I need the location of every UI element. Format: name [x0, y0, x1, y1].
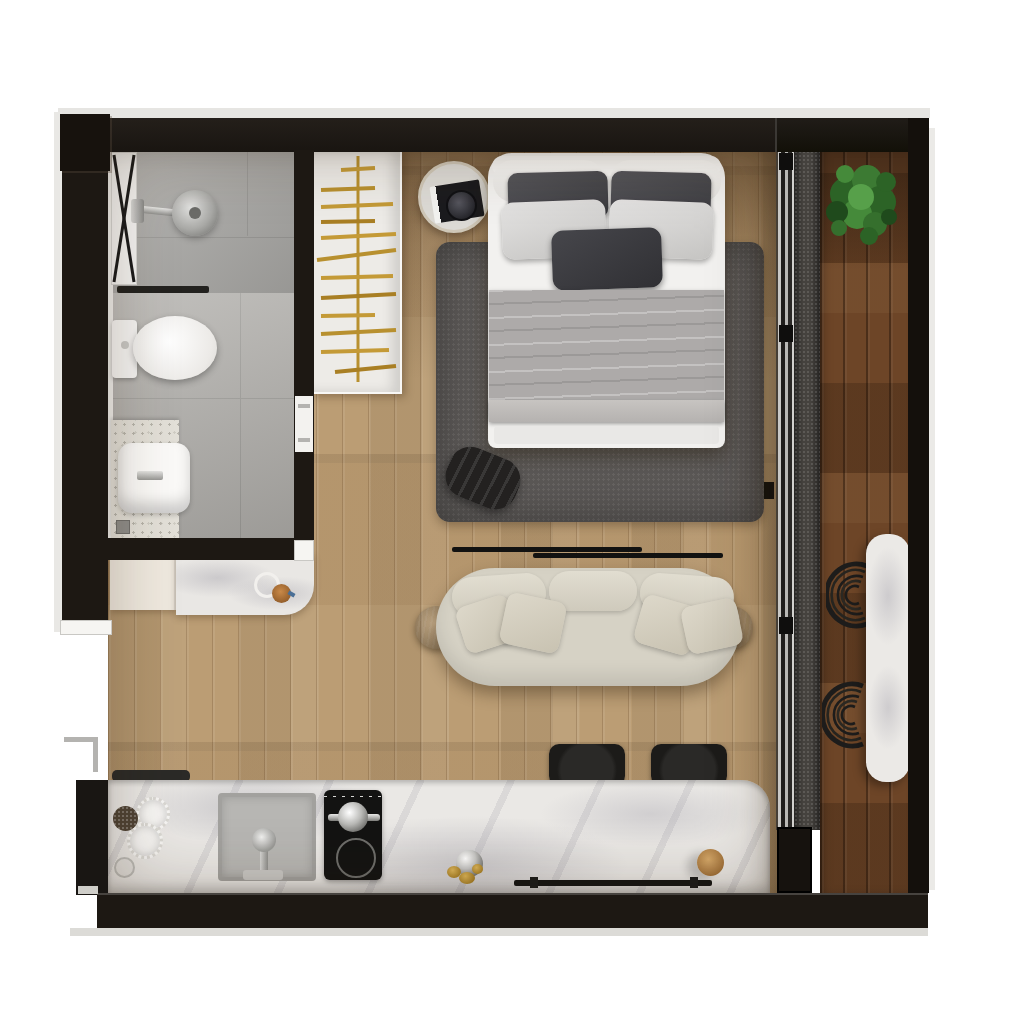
wall-end-cap: [60, 620, 112, 635]
exterior-bevel-top: [58, 108, 930, 118]
bathroom-partition-wall: [62, 538, 294, 560]
exterior-bevel-bottom: [70, 928, 928, 936]
balcony-pillar: [777, 827, 812, 893]
door-frame-tab: [779, 153, 793, 170]
walnut-balcony-floor: [820, 150, 908, 893]
exterior-bevel-right: [928, 128, 935, 890]
island-side-panel: [76, 780, 108, 895]
entry-door-frame: [93, 737, 98, 772]
corner-column: [60, 114, 110, 171]
door-frame-tab: [779, 325, 793, 342]
top-wall: [62, 118, 775, 152]
floor-plan-canvas: [0, 0, 1024, 1024]
bottom-wall: [97, 893, 928, 928]
balcony-top-wall: [775, 118, 928, 152]
floor-shadow-overlay: [108, 150, 778, 893]
right-wall: [908, 118, 929, 893]
door-frame-mark: [298, 438, 310, 442]
door-frame-mark: [298, 404, 310, 408]
exterior-bevel-left: [54, 112, 62, 632]
potted-plant: [815, 152, 910, 257]
wall-end-cap: [294, 540, 314, 561]
door-frame-tab: [779, 617, 793, 634]
bathroom-partition-wall: [294, 150, 314, 540]
entry-step: [78, 886, 98, 894]
balcony-console-table: [866, 534, 910, 782]
sliding-glass-door-track: [776, 150, 796, 830]
